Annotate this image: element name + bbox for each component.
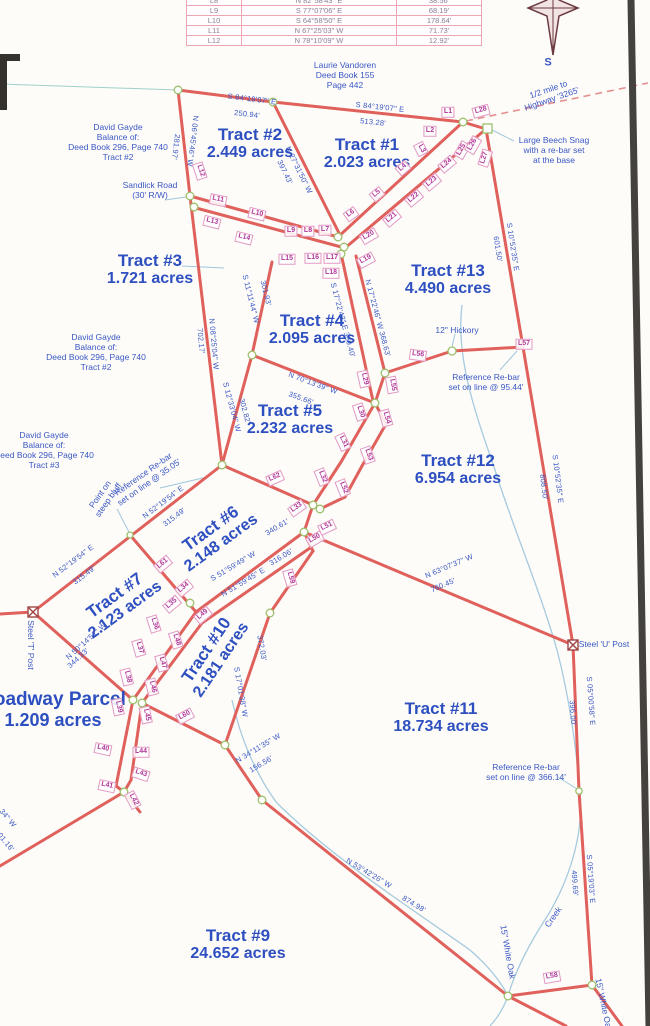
line-label: L60 [175, 707, 195, 724]
line-label: L5 [369, 186, 386, 203]
line-label: L40 [94, 742, 113, 756]
tract-acreage: 1.721 acres [107, 271, 193, 288]
map-note-line: S [544, 57, 551, 70]
line-label: L36 [146, 614, 161, 633]
tract-name: Tract #9 [190, 927, 285, 945]
bearing-label: 301.93' [259, 279, 274, 306]
line-label: L43 [131, 766, 150, 781]
map-note: David GaydeBalance of:Deed Book 296, Pag… [68, 122, 168, 162]
map-note: Creek [542, 905, 563, 929]
tract-label: Tract #22.449 acres [207, 126, 293, 162]
map-note-line: Laurie Vandoren [314, 60, 376, 70]
bearing-label: N 08°25'04" W [207, 318, 220, 370]
map-note: Laurie VandorenDeed Book 155Page 442 [314, 60, 376, 90]
line-label: L44 [132, 747, 149, 758]
line-label: L17 [323, 253, 340, 264]
survey-plat-map: L8N 82°58'43" E38.56'L9S 77°07'06" E68.1… [0, 0, 650, 1026]
tract-label: Tract #126.954 acres [415, 452, 501, 488]
bearing-label: N 53°42'26" W [345, 856, 394, 890]
tract-name: Tract #11 [393, 700, 488, 718]
map-note-line: Large Beech Snag [519, 135, 589, 145]
map-note-line: Steel 'U' Post [579, 639, 630, 649]
tract-name: Tract #1 [324, 136, 410, 154]
map-note-line: Tract #2 [46, 362, 146, 372]
bearing-label: 760.45' [429, 576, 456, 594]
tract-label: Roadway Parcel1.209 acres [0, 690, 126, 730]
map-note-line: Tract #3 [0, 460, 94, 470]
bearing-label: 396.00' [568, 700, 579, 726]
line-label: L61 [153, 554, 173, 573]
line-label: L28 [471, 104, 490, 119]
map-note: Reference Re-barset on line @ 95.44' [449, 372, 524, 392]
bearing-label: 316.06' [268, 547, 295, 568]
tract-acreage: 18.734 acres [393, 719, 488, 736]
tract-label: Tract #1118.734 acres [393, 700, 488, 736]
bearing-label: 808.50' [538, 474, 550, 501]
tract-label: Tract #924.652 acres [190, 927, 285, 963]
line-label: L57 [515, 339, 532, 350]
line-label: L45 [139, 706, 153, 725]
bearing-label: S 17°01'38" W [232, 666, 250, 718]
line-label: L6 [343, 206, 360, 222]
tract-label: Tract #134.490 acres [405, 262, 491, 298]
bearing-label: S 10°52'35" E [551, 454, 566, 504]
line-label: L23 [422, 172, 442, 191]
map-note-line: David Gayde [0, 430, 94, 440]
line-label: L32 [314, 467, 330, 487]
map-note-line: with a re-bar set [519, 145, 589, 155]
bearing-label: 499.69' [570, 870, 581, 896]
tract-acreage: 1.209 acres [0, 711, 126, 730]
line-label: L33 [287, 499, 307, 517]
line-label: L41 [98, 779, 117, 793]
label-layer: S 84°19'07" E250.94'S 84°19'07" E513.28'… [0, 0, 650, 1026]
map-note-line: Balance of: [68, 132, 168, 142]
bearing-label: N 63°07'37" W [424, 552, 475, 580]
map-note-line: at the base [519, 155, 589, 165]
map-note-line: Page 442 [314, 80, 376, 90]
line-label: L27 [477, 148, 492, 167]
line-label: L48 [168, 630, 183, 649]
line-label: L21 [382, 208, 402, 227]
line-label: L52 [335, 478, 351, 498]
tract-name: Tract #5 [247, 402, 333, 420]
tract-name: Roadway Parcel [0, 690, 126, 711]
line-label: L19 [356, 251, 376, 268]
map-note: Steel 'U' Post [579, 639, 630, 649]
line-label: L14 [234, 231, 253, 245]
line-label: L22 [404, 188, 424, 207]
tract-acreage: 2.449 acres [207, 145, 293, 162]
bearing-label: 372.03' [255, 635, 268, 662]
line-label: L24 [437, 154, 457, 173]
map-note-line: set on line @ 95.44' [449, 382, 524, 392]
map-note-line: Sandlick Road [123, 180, 178, 190]
bearing-label: S 84°19'07" E [355, 100, 405, 114]
map-note: Sandlick Road(30' R/W) [123, 180, 178, 200]
bearing-label: 702.17' [195, 328, 206, 354]
map-note: 15" White Oak [593, 977, 614, 1026]
line-label: L1 [441, 107, 454, 118]
line-label: L56 [409, 349, 427, 362]
bearing-label: S 05°00'58" E [585, 676, 597, 725]
bearing-label: 601.50' [492, 236, 505, 263]
tract-acreage: 24.652 acres [190, 946, 285, 963]
map-note-line: (30' R/W) [123, 190, 178, 200]
map-note-line: 15" White Oak [593, 977, 614, 1026]
line-label: L51 [317, 519, 337, 536]
tract-name: Tract #3 [107, 252, 193, 270]
tract-name: Tract #2 [207, 126, 293, 144]
line-label: L12 [192, 161, 207, 180]
map-note-line: Reference Re-bar [486, 762, 566, 772]
line-label: L15 [278, 254, 295, 265]
line-label: L20 [359, 227, 379, 245]
bearing-label: 340.61' [264, 517, 291, 538]
map-note-line: Creek [542, 905, 563, 929]
line-label: L2 [423, 126, 436, 137]
map-note-line: Tract #2 [68, 152, 168, 162]
map-note: Reference Re-barset on line @ 366.14' [486, 762, 566, 782]
bearing-label: 874.98' [401, 894, 428, 915]
map-note-line: Deed Book 296, Page 740 [46, 352, 146, 362]
map-note: 1/2 mile toHighway '3265' [520, 75, 581, 113]
map-note: David GaydeBalance of:Deed Book 296, Pag… [0, 430, 94, 470]
map-note-line: Deed Book 155 [314, 70, 376, 80]
line-label: L55 [385, 376, 398, 395]
line-label: L49 [193, 605, 213, 624]
line-label: L35 [162, 594, 182, 613]
line-label: L10 [247, 207, 266, 221]
line-label: L29 [357, 370, 371, 389]
tract-acreage: 6.954 acres [415, 471, 501, 488]
map-note-line: David Gayde [68, 122, 168, 132]
line-label: L9 [284, 226, 297, 237]
bearing-label: 315.49' [161, 506, 187, 529]
tract-label: Tract #52.232 acres [247, 402, 333, 438]
line-label: L59 [283, 568, 298, 587]
line-label: L62 [265, 470, 285, 487]
bearing-label: 34" W [0, 807, 18, 829]
line-label: L37 [132, 638, 147, 657]
bearing-label: 250.94' [234, 108, 261, 120]
bearing-label: S 10°52'35" E [505, 222, 522, 272]
line-label: L34 [174, 578, 194, 597]
line-label: L58 [543, 970, 562, 983]
line-label: L54 [379, 408, 394, 427]
line-label: L3 [413, 141, 428, 158]
line-label: L38 [120, 667, 134, 686]
map-note: S [544, 57, 551, 70]
tract-label: Tract #42.095 acres [269, 312, 355, 348]
tract-name: Tract #12 [415, 452, 501, 470]
bearing-label: N 17°22'46" W 368.63' [363, 278, 392, 357]
tract-acreage: 4.490 acres [405, 281, 491, 298]
bearing-label: S 84°19'07" E [227, 92, 277, 107]
bearing-label: S 05°19'03" E [585, 854, 597, 903]
bearing-label: N 06°45'46" W [185, 115, 200, 167]
map-note-line: Deed Book 296, Page 740 [0, 450, 94, 460]
bearing-label: 513.28' [360, 116, 387, 128]
map-note: 15" White Oak [498, 924, 517, 979]
map-note-line: 15" White Oak [498, 924, 517, 979]
line-label: L8 [301, 226, 314, 237]
map-note-line: David Gayde [46, 332, 146, 342]
map-note-line: Reference Re-bar [449, 372, 524, 382]
map-note-line: 12" Hickory [435, 325, 478, 335]
bearing-label: 281.97' [170, 134, 182, 161]
map-note: Steel 'T' Post [26, 620, 36, 670]
line-label: L30 [352, 402, 367, 421]
line-label: L13 [202, 215, 221, 229]
map-note-line: Balance of: [0, 440, 94, 450]
tract-acreage: 2.232 acres [247, 421, 333, 438]
bearing-label: 315.49' [71, 564, 97, 587]
map-note: 12" Hickory [435, 325, 478, 335]
tract-label: Tract #31.721 acres [107, 252, 193, 288]
map-note-line: set on line @ 366.14' [486, 772, 566, 782]
line-label: L16 [304, 253, 321, 264]
line-label: L31 [335, 432, 352, 452]
map-note-line: Deed Book 296, Page 740 [68, 142, 168, 152]
line-label: L11 [209, 193, 228, 207]
line-label: L46 [145, 677, 159, 696]
line-label: L53 [360, 445, 376, 465]
tract-name: Tract #4 [269, 312, 355, 330]
line-label: L7 [318, 225, 331, 236]
line-label: L42 [124, 790, 141, 810]
line-label: L18 [322, 268, 339, 279]
map-note-line: Steel 'T' Post [26, 620, 36, 670]
line-label: L47 [155, 653, 170, 672]
bearing-label: 01.16' [0, 831, 16, 853]
tract-name: Tract #13 [405, 262, 491, 280]
map-note: Large Beech Snagwith a re-bar setat the … [519, 135, 589, 165]
tract-acreage: 2.095 acres [269, 331, 355, 348]
map-note-line: Balance of: [46, 342, 146, 352]
map-note: David GaydeBalance of:Deed Book 296, Pag… [46, 332, 146, 372]
